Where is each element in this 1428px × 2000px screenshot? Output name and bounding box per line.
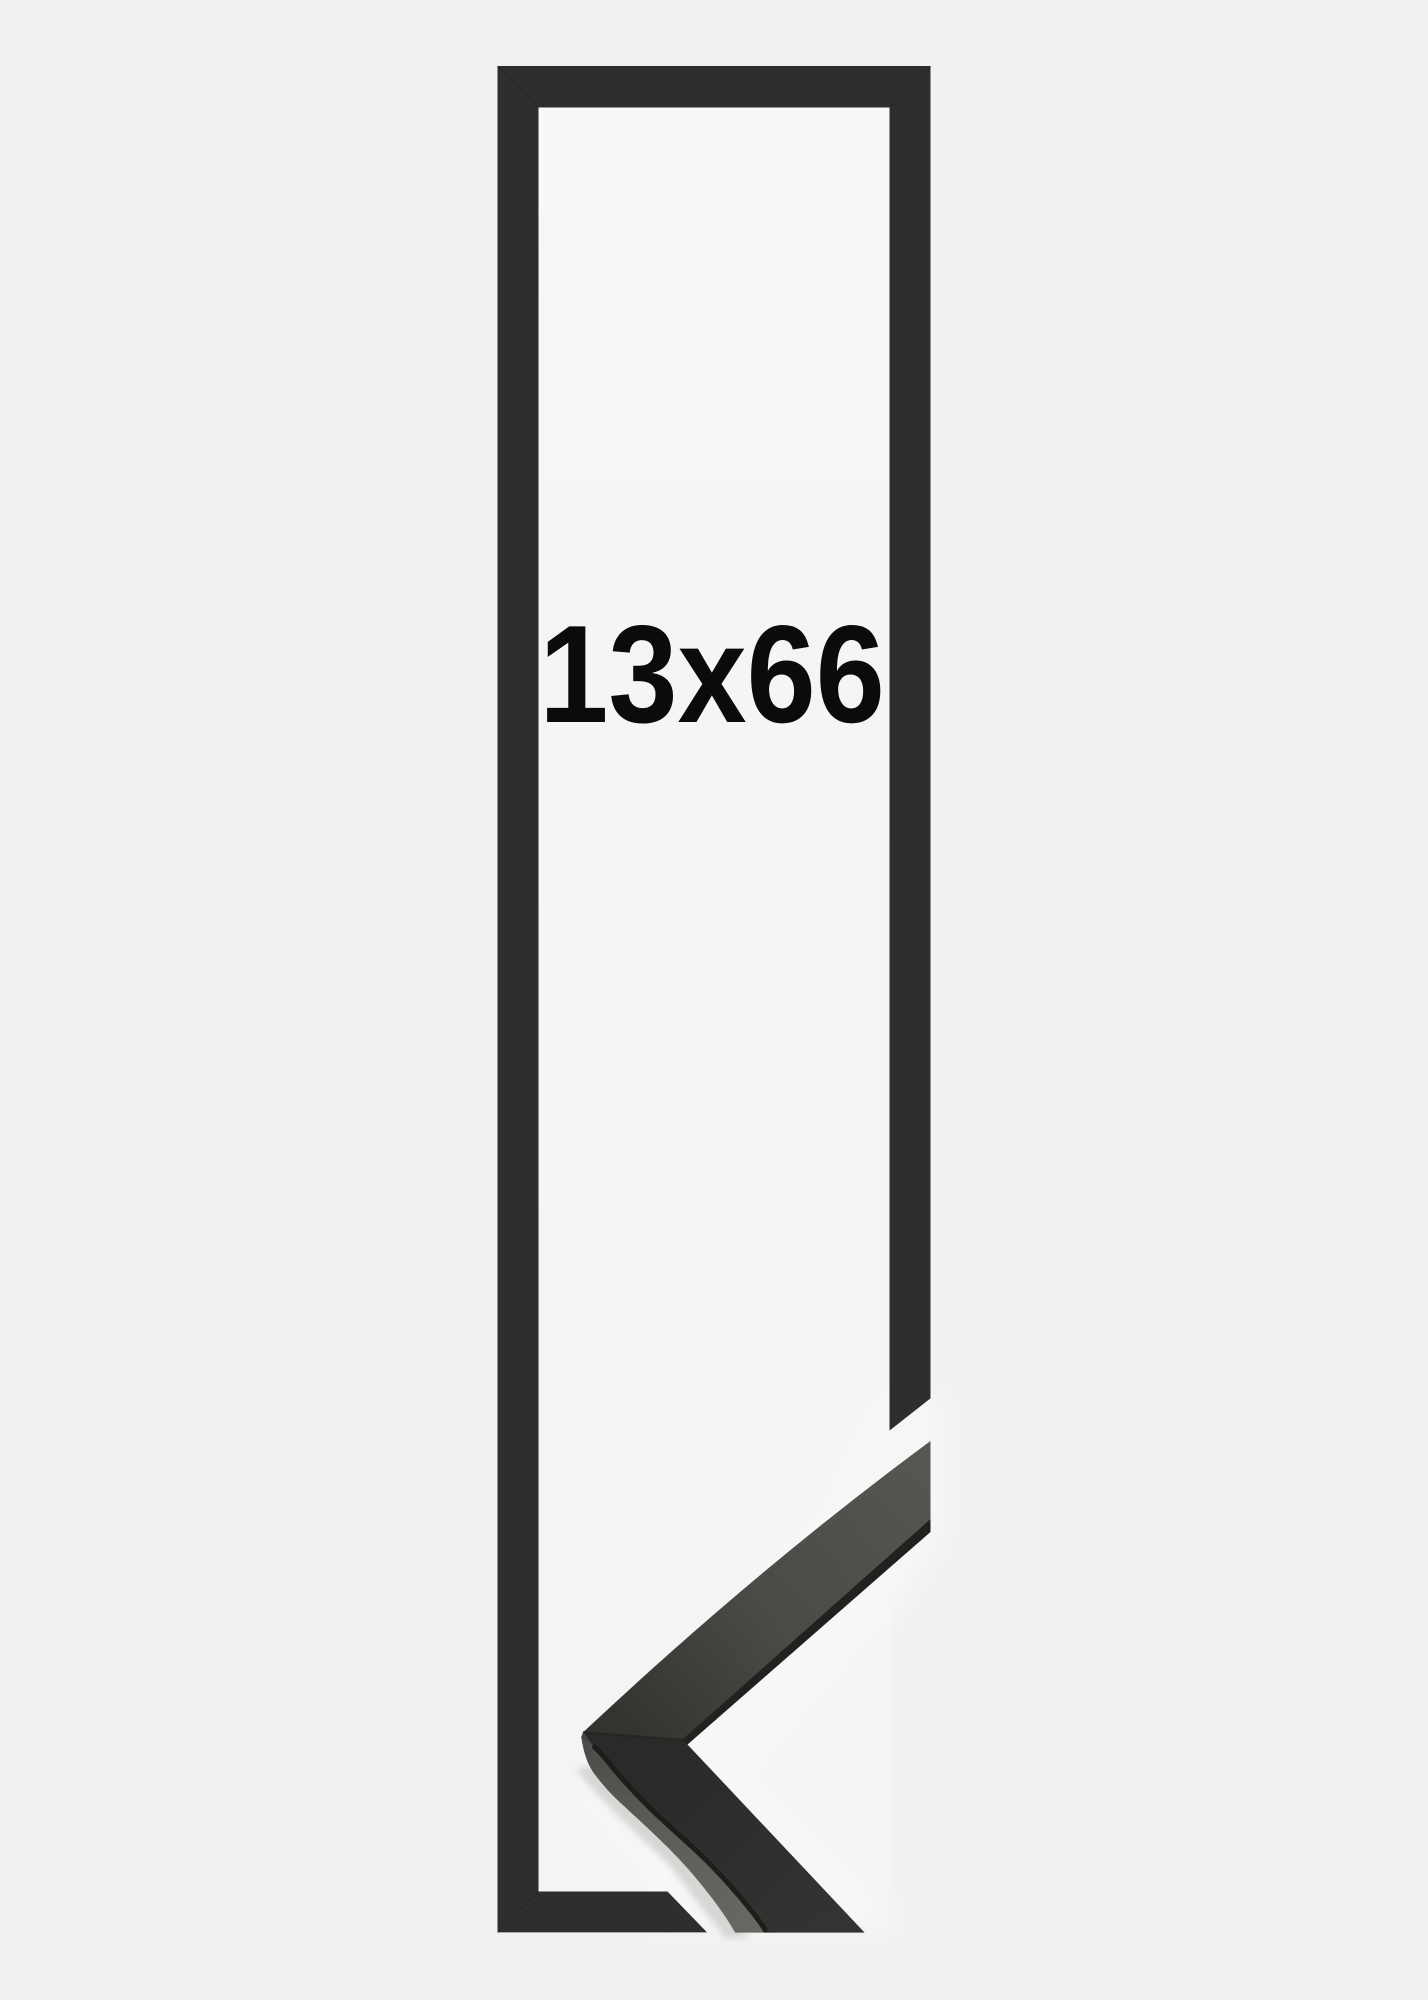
svg-text:13x66: 13x66 [539, 597, 885, 752]
